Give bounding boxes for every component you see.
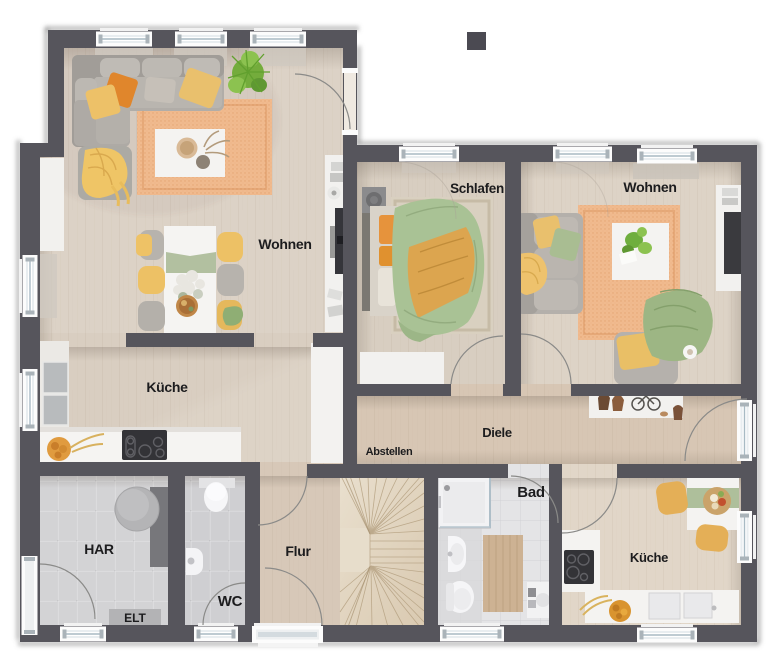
svg-text:WC: WC bbox=[218, 593, 243, 610]
svg-text:Diele: Diele bbox=[482, 425, 512, 440]
svg-text:ELT: ELT bbox=[124, 611, 146, 625]
svg-text:Schlafen: Schlafen bbox=[450, 181, 504, 196]
svg-text:Wohnen: Wohnen bbox=[258, 236, 311, 252]
svg-text:Flur: Flur bbox=[285, 543, 311, 559]
svg-text:Küche: Küche bbox=[630, 550, 668, 565]
svg-text:Bad: Bad bbox=[517, 484, 545, 501]
svg-text:Wohnen: Wohnen bbox=[623, 179, 676, 195]
svg-text:HAR: HAR bbox=[84, 541, 114, 557]
svg-text:Abstellen: Abstellen bbox=[366, 446, 413, 458]
svg-text:Küche: Küche bbox=[146, 379, 188, 395]
